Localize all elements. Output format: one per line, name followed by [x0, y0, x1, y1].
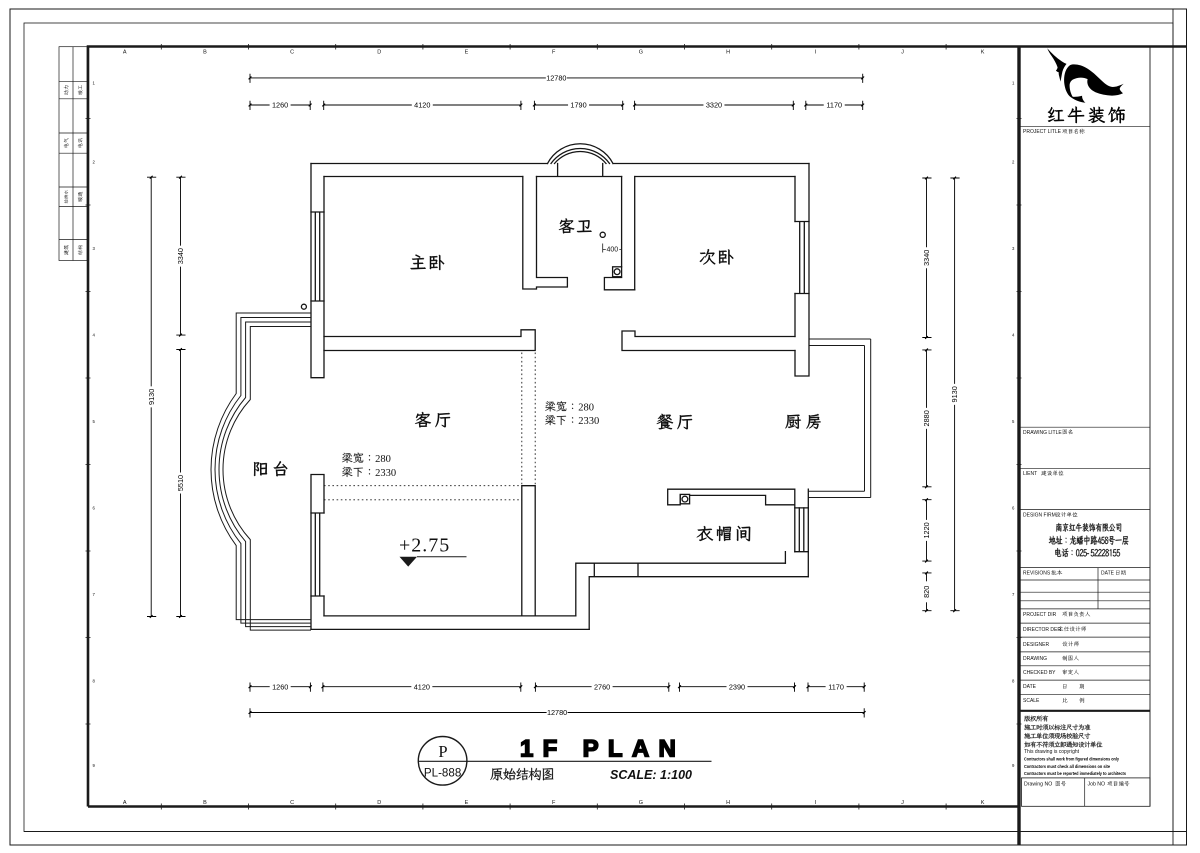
- svg-text:3320: 3320: [706, 101, 722, 110]
- svg-text:D: D: [377, 50, 381, 56]
- svg-text:Contractors must check all dim: Contractors must check all dimensions on…: [1024, 764, 1110, 770]
- svg-text:2880: 2880: [922, 410, 931, 426]
- svg-text:LIENT: LIENT: [1023, 471, 1037, 477]
- svg-text:12780: 12780: [546, 74, 566, 83]
- svg-text:C: C: [290, 50, 294, 56]
- svg-text:PROJECT DIR: PROJECT DIR: [1023, 612, 1057, 618]
- svg-text:SCALE: 1:100: SCALE: 1:100: [610, 768, 692, 782]
- svg-text:A: A: [123, 50, 127, 56]
- svg-text:1F PLAN: 1F PLAN: [520, 736, 685, 763]
- svg-text:3340: 3340: [176, 248, 185, 264]
- svg-text:This drawing is copyright: This drawing is copyright: [1024, 749, 1080, 755]
- svg-text:C: C: [290, 800, 294, 806]
- svg-text:2330: 2330: [578, 416, 599, 427]
- svg-text:H: H: [726, 50, 730, 56]
- svg-text:2760: 2760: [594, 682, 610, 691]
- svg-text:DATE: DATE: [1101, 571, 1115, 577]
- svg-text:DIRECTOR DER: DIRECTOR DER: [1023, 627, 1061, 633]
- svg-text:REVISIONS: REVISIONS: [1023, 571, 1051, 577]
- svg-text:4120: 4120: [414, 682, 430, 691]
- svg-text:Drawing NO: Drawing NO: [1024, 782, 1052, 788]
- svg-text:1170: 1170: [828, 682, 844, 691]
- svg-text:2330: 2330: [375, 468, 396, 479]
- svg-text:PL-888: PL-888: [424, 767, 461, 780]
- svg-text:SCALE: SCALE: [1023, 698, 1040, 704]
- svg-text:280: 280: [578, 402, 594, 413]
- svg-text:D: D: [377, 800, 381, 806]
- svg-text:3340: 3340: [922, 250, 931, 266]
- svg-text:B: B: [203, 50, 207, 56]
- svg-text:A: A: [123, 800, 127, 806]
- svg-text:9130: 9130: [147, 389, 156, 405]
- svg-text:2390: 2390: [729, 682, 745, 691]
- svg-text:PROJECT LITLE: PROJECT LITLE: [1023, 129, 1062, 135]
- svg-text:DRAWING: DRAWING: [1023, 656, 1047, 662]
- svg-text:CHECKED BY: CHECKED BY: [1023, 670, 1056, 676]
- svg-text:4120: 4120: [414, 101, 430, 110]
- svg-text:P: P: [438, 742, 447, 761]
- svg-text:E: E: [465, 800, 469, 806]
- svg-text:Contractors must be reported i: Contractors must be reported immediately…: [1024, 771, 1126, 777]
- svg-text:DESIGNER: DESIGNER: [1023, 642, 1050, 648]
- svg-text:9130: 9130: [950, 386, 959, 402]
- svg-text:DATE: DATE: [1023, 684, 1037, 690]
- svg-text:12780: 12780: [547, 708, 567, 717]
- svg-text:+2.75: +2.75: [399, 535, 450, 557]
- svg-text:1260: 1260: [272, 101, 288, 110]
- svg-text:820: 820: [922, 586, 931, 598]
- svg-text:K: K: [981, 800, 985, 806]
- svg-text:H: H: [726, 800, 730, 806]
- svg-text:400: 400: [606, 247, 618, 254]
- svg-text:K: K: [981, 50, 985, 56]
- svg-text:1260: 1260: [272, 682, 288, 691]
- svg-text:DRAWING LITLE: DRAWING LITLE: [1023, 430, 1062, 436]
- svg-text:J: J: [901, 50, 904, 56]
- svg-text:1220: 1220: [922, 522, 931, 538]
- svg-text:280: 280: [375, 454, 391, 465]
- svg-text:1170: 1170: [826, 101, 842, 110]
- svg-text:Job NO: Job NO: [1088, 782, 1106, 788]
- svg-text:J: J: [901, 800, 904, 806]
- svg-text:Contractors shall work from fi: Contractors shall work from figured dime…: [1024, 756, 1119, 762]
- svg-text:G: G: [639, 800, 643, 806]
- svg-text:G: G: [639, 50, 643, 56]
- svg-text:DESIGN FIRM: DESIGN FIRM: [1023, 513, 1056, 519]
- svg-text:B: B: [203, 800, 207, 806]
- svg-text:5510: 5510: [176, 475, 185, 491]
- svg-text:E: E: [465, 50, 469, 56]
- svg-text:1790: 1790: [570, 101, 586, 110]
